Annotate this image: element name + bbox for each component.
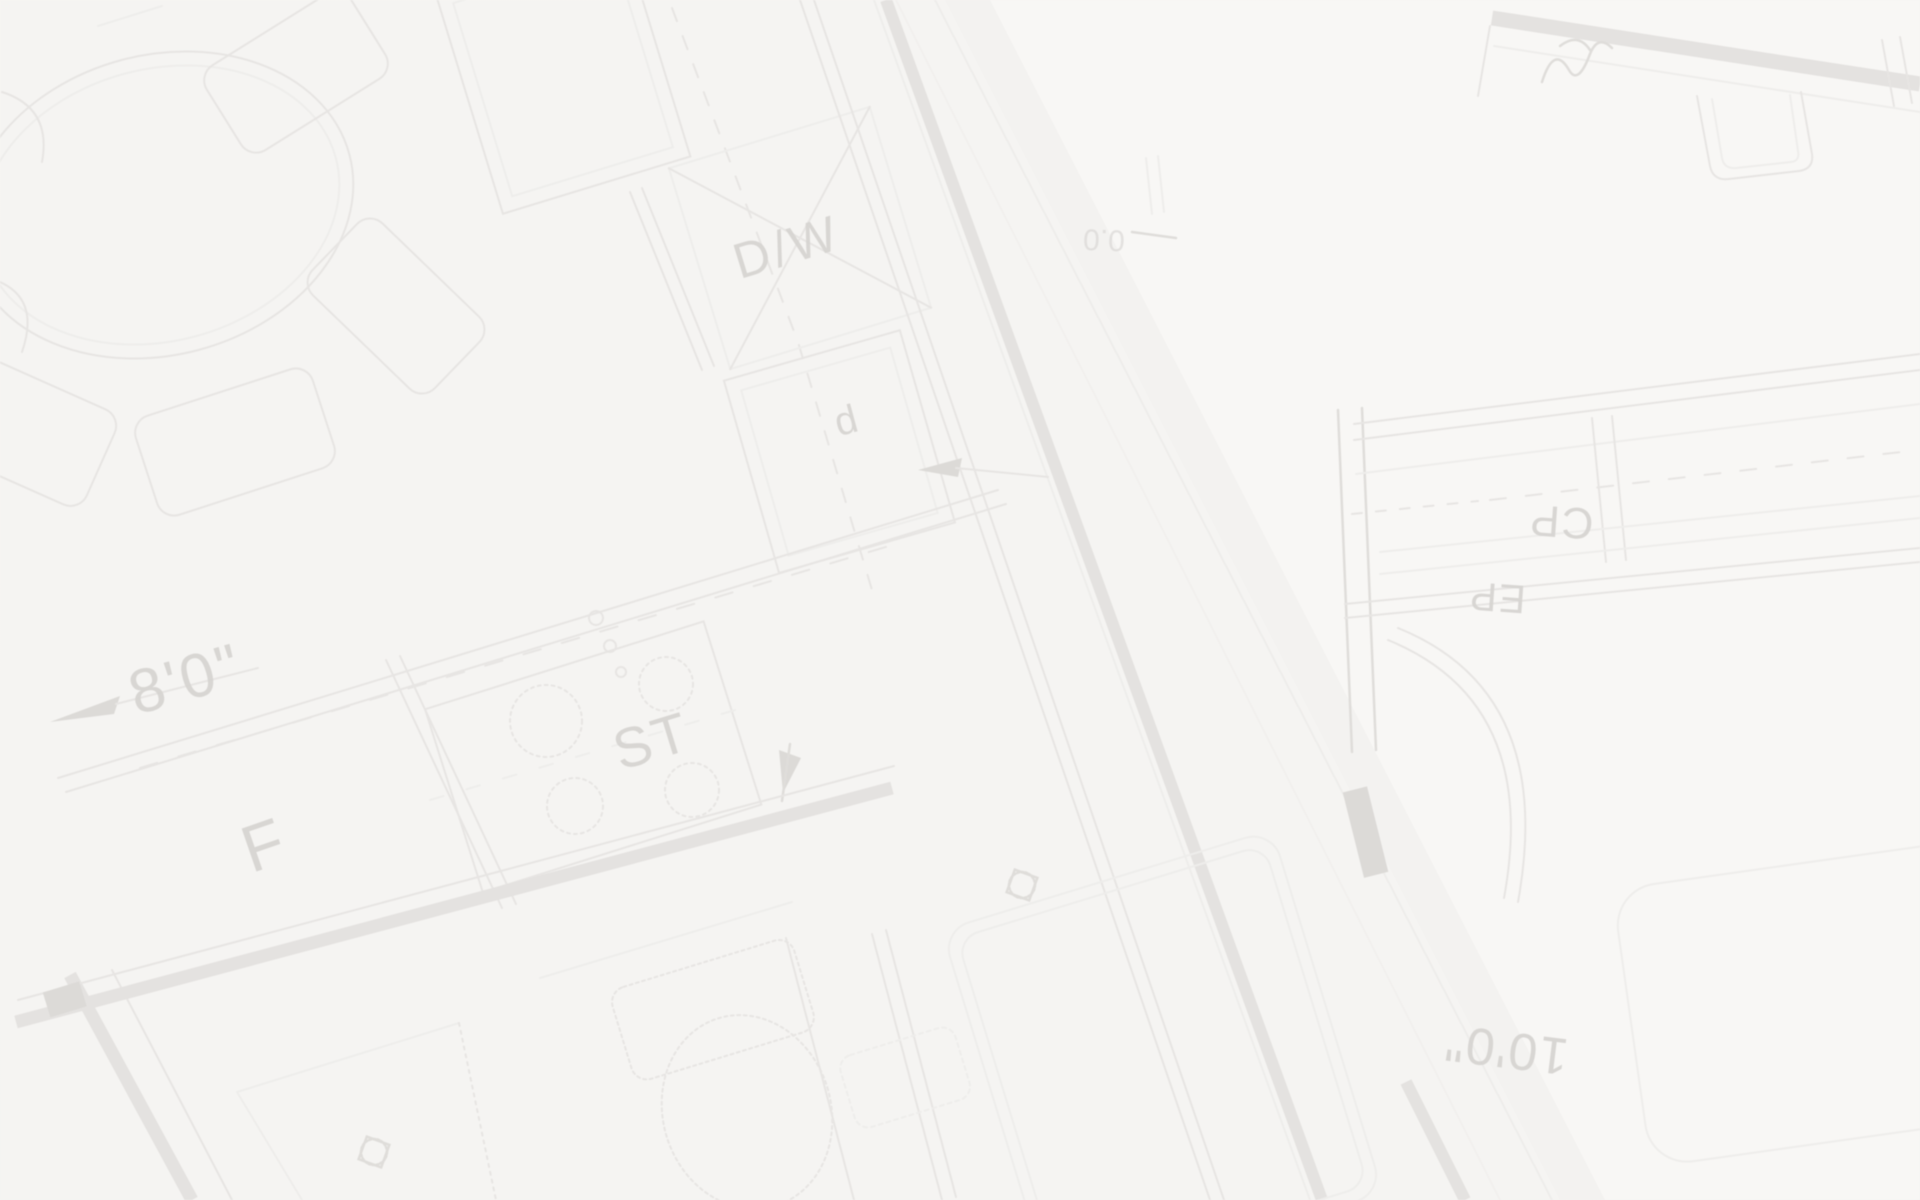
label-stove: ST (607, 703, 698, 779)
dimension-10ft: 10'0" (1441, 1016, 1572, 1083)
label-electrical-panel: EP (1467, 575, 1527, 619)
label-cabinet-d: d (830, 399, 862, 443)
label-carpet: CP (1527, 497, 1595, 545)
dimension-8ft: 8'0" (122, 634, 249, 725)
label-dishwasher: D/W (727, 207, 846, 287)
label-fridge: F (233, 807, 293, 883)
dimension-zero: 0.0 (1083, 223, 1126, 254)
plan-labels: D/W 8'0" F ST d CP EP 10'0" 0.0 (0, 0, 1920, 1200)
floor-plan-blueprint: D/W 8'0" F ST d CP EP 10'0" 0.0 (0, 0, 1920, 1200)
